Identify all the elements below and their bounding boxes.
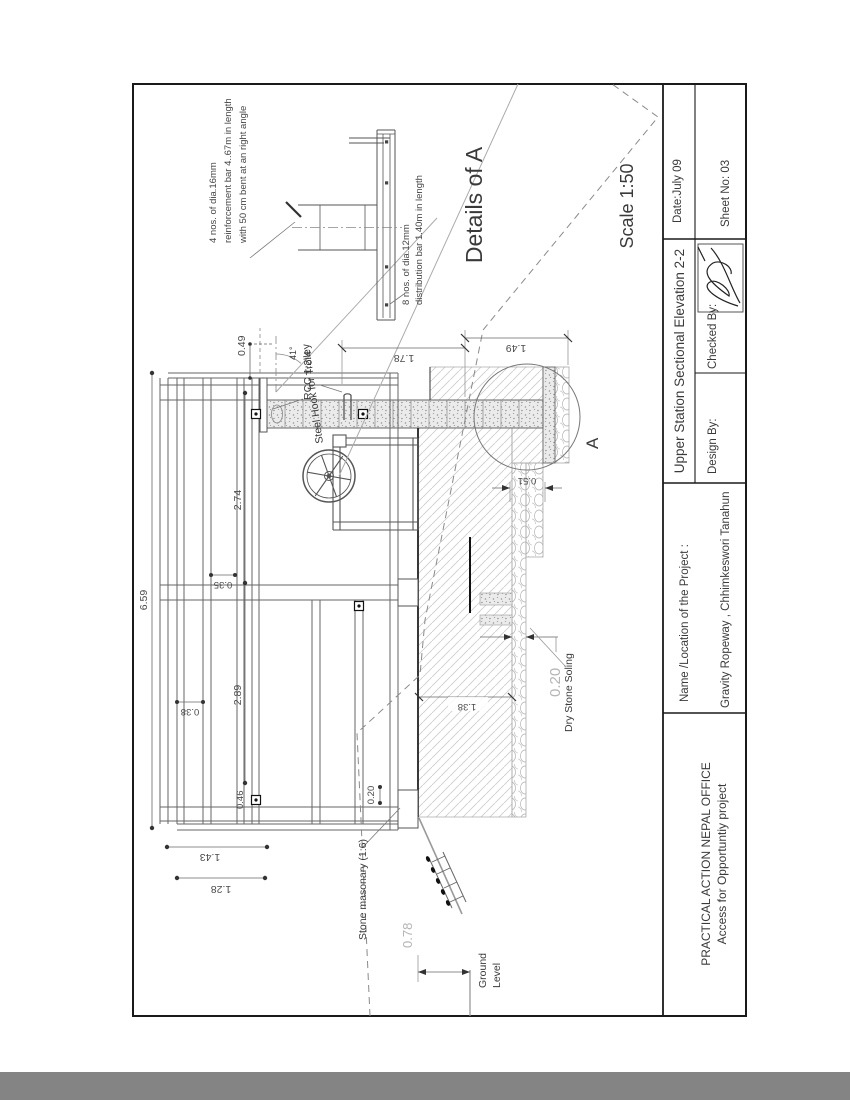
mid-post-pad	[398, 579, 418, 606]
dim-wall-upper: 1.78	[394, 352, 415, 364]
screenshot: 4 nos. of dia.16mm reinforcement bar 4..…	[0, 0, 850, 1100]
left-post-pad	[398, 790, 418, 828]
dim-rail-gap-a: 0.35	[214, 579, 233, 590]
org-name: PRACTICAL ACTION NEPAL OFFICE	[699, 762, 713, 966]
detail-title: Details of A	[461, 146, 487, 263]
project-value: Gravity Ropeway , Chhimkeswori Tanahun	[720, 492, 732, 708]
dim-footing-b: 1.28	[211, 883, 232, 895]
drawing-title: Upper Station Sectional Elevation 2-2	[672, 249, 687, 473]
cable-anchor	[419, 818, 466, 914]
dim-floor-depth-group: 1.38	[448, 697, 488, 712]
dim-rail-gap-b: 0.38	[181, 706, 200, 717]
dim-span-left: 2.89	[232, 685, 244, 706]
dim-cap: 0.49	[236, 335, 248, 356]
rope-angle-ray	[276, 218, 437, 392]
design-by-label: Design By:	[707, 418, 719, 474]
project-label: Name /Location of the Project :	[679, 544, 691, 702]
dim-footing-a: 1.43	[200, 851, 221, 863]
detail-marker: A	[583, 437, 602, 449]
detail-scale: Scale 1:50	[617, 163, 637, 248]
ground-level-label-2: Level	[491, 963, 503, 988]
rebar-note-line2: reinforcement bar 4..67m in length	[223, 98, 234, 243]
date-value: Date:July 09	[672, 159, 684, 223]
dim-post: 0.20	[366, 786, 377, 805]
rcc-footing	[543, 367, 555, 463]
detail-a-figure	[250, 130, 404, 320]
signature	[698, 247, 740, 306]
trolley	[303, 435, 418, 530]
distribution-note-line2: distribution bar 1.40m in length	[414, 175, 425, 305]
checked-by-label: Checked By:	[707, 304, 719, 369]
dim-soling: 0.20	[547, 668, 564, 697]
dim-wall-lower: 1.49	[506, 342, 527, 354]
org-project: Access for Opportuntiy project	[715, 783, 729, 944]
angle-label: 41°	[288, 346, 298, 360]
ground-level-label-1: Ground	[477, 953, 489, 988]
distribution-note-line1: 8 nos. of dia.12mm	[401, 224, 412, 305]
dim-overall: 6.59	[138, 590, 150, 611]
dim-ground-height: 0.78	[400, 923, 415, 948]
stone-masonry-label: Stone masonary (1:6)	[357, 839, 369, 940]
bottom-gray-band	[0, 1072, 850, 1100]
rebar-note-line1: 4 nos. of dia.16mm	[208, 162, 219, 243]
title-block: PRACTICAL ACTION NEPAL OFFICE Access for…	[663, 84, 746, 1016]
break-mark	[286, 202, 301, 217]
dim-span-right: 2.74	[232, 490, 244, 511]
drawing-sheet: 4 nos. of dia.16mm reinforcement bar 4..…	[0, 0, 850, 1100]
dim-floor-depth: 1.38	[458, 701, 477, 712]
sheet-number: Sheet No: 03	[720, 160, 732, 227]
dry-stone-soling-label: Dry Stone Soling	[563, 653, 575, 732]
dim-end-width: 0.46	[235, 791, 246, 810]
dry-stone-soling-strip	[512, 463, 526, 817]
rebar-note-line3: with 50 cm bent at an right angle	[238, 106, 249, 244]
signature-box	[698, 244, 743, 312]
dim-slab: 0.51	[518, 475, 537, 486]
